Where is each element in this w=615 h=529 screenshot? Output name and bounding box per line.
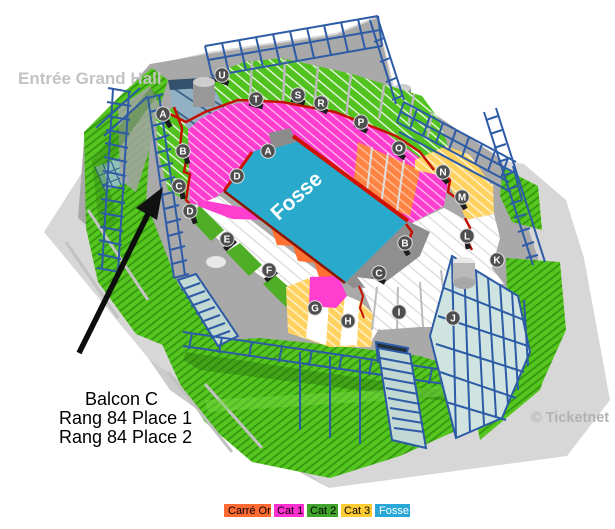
svg-text:Cat 2: Cat 2 — [310, 505, 336, 517]
svg-text:Fosse: Fosse — [379, 505, 409, 517]
svg-text:Cat 1: Cat 1 — [277, 505, 303, 517]
svg-text:A: A — [264, 147, 271, 158]
svg-text:U: U — [218, 71, 225, 82]
svg-text:L: L — [464, 232, 470, 243]
svg-text:R: R — [317, 99, 325, 110]
svg-text:H: H — [344, 317, 351, 328]
svg-text:I: I — [398, 308, 401, 319]
svg-text:D: D — [186, 207, 193, 218]
svg-text:B: B — [401, 239, 408, 250]
svg-text:S: S — [295, 91, 302, 102]
svg-text:Rang 84 Place 1: Rang 84 Place 1 — [59, 408, 192, 428]
svg-text:Entrée Grand Hall: Entrée Grand Hall — [18, 69, 162, 88]
svg-text:N: N — [439, 168, 446, 179]
svg-text:Balcon C: Balcon C — [85, 389, 158, 409]
svg-text:C: C — [375, 269, 382, 280]
svg-text:O: O — [395, 144, 403, 155]
svg-text:G: G — [311, 304, 319, 315]
svg-text:J: J — [450, 314, 456, 325]
svg-text:A: A — [159, 110, 166, 121]
svg-text:Rang 84 Place 2: Rang 84 Place 2 — [59, 427, 192, 447]
svg-text:E: E — [224, 235, 231, 246]
svg-text:K: K — [493, 256, 501, 267]
svg-text:P: P — [358, 118, 365, 129]
svg-text:B: B — [179, 147, 186, 158]
svg-text:Cat 3: Cat 3 — [344, 505, 370, 517]
svg-text:D: D — [233, 172, 240, 183]
svg-text:Carré Or: Carré Or — [228, 505, 271, 517]
svg-text:© Ticketnet: © Ticketnet — [531, 410, 609, 426]
svg-text:C: C — [175, 182, 182, 193]
svg-text:F: F — [266, 266, 272, 277]
svg-text:M: M — [458, 193, 466, 204]
svg-text:T: T — [253, 95, 259, 106]
